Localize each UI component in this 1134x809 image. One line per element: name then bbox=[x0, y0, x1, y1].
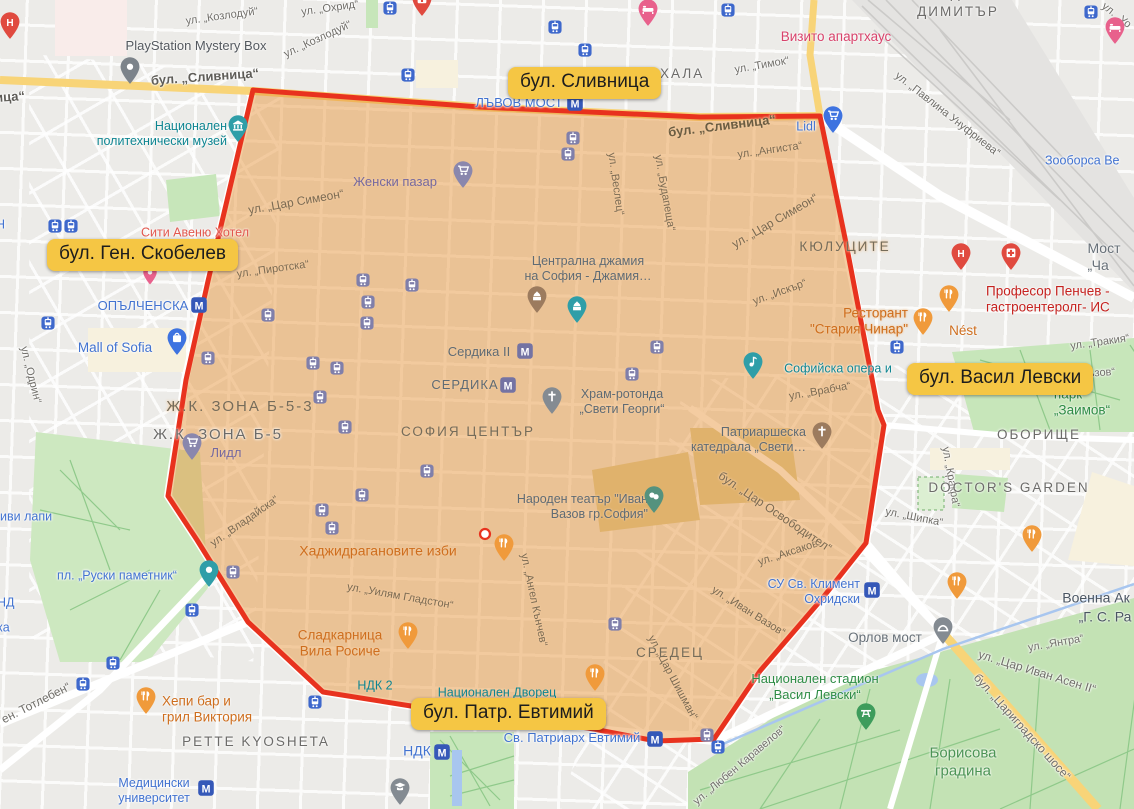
restaurant-pin[interactable] bbox=[1022, 525, 1043, 553]
bridge-pin[interactable] bbox=[933, 617, 954, 645]
tram-stop-badge[interactable] bbox=[106, 656, 121, 671]
tram-stop-badge[interactable] bbox=[578, 43, 593, 58]
metro-badge[interactable] bbox=[647, 731, 664, 748]
tram-stop-badge[interactable] bbox=[355, 488, 370, 503]
tram-stop-badge[interactable] bbox=[561, 147, 576, 162]
hospital-pin[interactable] bbox=[412, 0, 433, 17]
area-label: ХАДЖИ bbox=[928, 0, 988, 2]
poi-label[interactable]: Nést bbox=[949, 323, 977, 339]
tram-stop-badge[interactable] bbox=[548, 20, 563, 35]
poi-label[interactable]: Сладкарница Вила Росиче bbox=[298, 628, 382, 661]
picnic-pin[interactable] bbox=[856, 703, 877, 731]
poi-label[interactable]: Mall of Sofia bbox=[78, 340, 152, 356]
poi-label[interactable]: Визито апартхаус bbox=[781, 29, 892, 45]
restaurant-pin[interactable] bbox=[494, 534, 515, 562]
tram-stop-badge[interactable] bbox=[890, 340, 905, 355]
poi-label[interactable]: Народен театър "Иван Вазов гр.София" bbox=[517, 492, 648, 523]
restaurant-pin[interactable] bbox=[136, 687, 157, 715]
tram-stop-badge[interactable] bbox=[306, 356, 321, 371]
tram-stop-badge[interactable] bbox=[405, 278, 420, 293]
poi-label[interactable]: Хаджидрагановите изби bbox=[299, 542, 456, 559]
supermarket-pin[interactable] bbox=[182, 433, 203, 461]
poi-label[interactable]: Професор Пенчев - гастроентеролг- ИС bbox=[986, 284, 1110, 317]
metro-station-label[interactable]: Сердика II bbox=[448, 344, 510, 360]
poi-label[interactable]: Патриаршеска катедрала „Свети… bbox=[691, 425, 806, 456]
poi-label[interactable]: иви лапи bbox=[0, 509, 52, 524]
mosque-pin[interactable] bbox=[527, 286, 548, 314]
tram-stop-badge[interactable] bbox=[608, 617, 623, 632]
tram-stop-badge[interactable] bbox=[313, 390, 328, 405]
tram-stop-badge[interactable] bbox=[201, 351, 216, 366]
metro-station-label[interactable]: ОПЪЛЧЕНСКА bbox=[98, 298, 189, 314]
restaurant-pin[interactable] bbox=[913, 308, 934, 336]
university-pin[interactable] bbox=[390, 778, 411, 806]
tram-stop-badge[interactable] bbox=[64, 219, 79, 234]
hospital-pin[interactable] bbox=[1001, 243, 1022, 271]
tram-stop-badge[interactable] bbox=[185, 603, 200, 618]
area-label: Ж.К. ЗОНА Б-5 bbox=[153, 426, 283, 444]
poi-label[interactable]: НДК 2 bbox=[357, 678, 392, 693]
hospital-pin[interactable] bbox=[0, 12, 21, 40]
tram-stop-badge[interactable] bbox=[360, 316, 375, 331]
metro-station-label[interactable]: НДК bbox=[403, 742, 431, 759]
tram-stop-badge[interactable] bbox=[1084, 5, 1099, 20]
hotel-pin[interactable] bbox=[1105, 17, 1126, 45]
poi-label[interactable]: Хепи бар и грил Виктория bbox=[162, 694, 252, 727]
metro-station-label[interactable]: Св. Патриарх Евтимий bbox=[504, 730, 641, 746]
tram-stop-badge[interactable] bbox=[650, 340, 665, 355]
tram-stop-badge[interactable] bbox=[721, 3, 736, 18]
highlight-label-slivnitsa: бул. Сливница bbox=[508, 67, 661, 99]
tram-stop-badge[interactable] bbox=[261, 308, 276, 323]
park-label: Борисова градина bbox=[929, 745, 996, 782]
opera-pin[interactable] bbox=[743, 352, 764, 380]
poi-pin[interactable] bbox=[120, 57, 141, 85]
poi-label[interactable]: пл. „Руски паметник“ bbox=[57, 568, 177, 583]
metro-badge[interactable] bbox=[434, 744, 451, 761]
tram-stop-badge[interactable] bbox=[325, 521, 340, 536]
poi-label[interactable]: Зооборса Ве bbox=[1045, 153, 1119, 168]
tram-stop-badge[interactable] bbox=[226, 565, 241, 580]
poi-label[interactable]: Lidl bbox=[796, 119, 815, 134]
monument-pin[interactable] bbox=[199, 560, 220, 588]
area-label: Ж.К. ЗОНА Б-5-3 bbox=[166, 398, 313, 416]
area-label: ДИМИТЪР bbox=[917, 4, 999, 20]
tram-stop-badge[interactable] bbox=[76, 677, 91, 692]
tram-stop-badge[interactable] bbox=[315, 503, 330, 518]
restaurant-pin[interactable] bbox=[947, 572, 968, 600]
restaurant-pin[interactable] bbox=[939, 285, 960, 313]
tram-stop-badge[interactable] bbox=[700, 728, 715, 743]
poi-label: Мост „Ча bbox=[1087, 240, 1120, 274]
poi-label[interactable]: Софийска опера и bbox=[784, 361, 892, 376]
highlight-label-skobelev: бул. Ген. Скобелев bbox=[47, 239, 238, 271]
poi-label: ка bbox=[0, 620, 10, 635]
area-label: СОФИЯ ЦЕНТЪР bbox=[401, 424, 535, 440]
tram-stop-badge[interactable] bbox=[420, 464, 435, 479]
tram-stop-badge[interactable] bbox=[383, 1, 398, 16]
poi-label: Военна Ак bbox=[1062, 589, 1130, 606]
highlight-label-levski: бул. Васил Левски bbox=[907, 363, 1093, 395]
tram-stop-badge[interactable] bbox=[356, 273, 371, 288]
metro-badge[interactable] bbox=[198, 780, 215, 797]
poi-label[interactable]: Национален политехнически музей bbox=[97, 119, 227, 150]
hotel-pin[interactable] bbox=[638, 0, 659, 27]
restaurant-pin[interactable] bbox=[585, 664, 606, 692]
hospital-pin[interactable] bbox=[951, 243, 972, 271]
tram-stop-badge[interactable] bbox=[338, 420, 353, 435]
area-label: PETTE KYOSHETA bbox=[182, 734, 330, 750]
supermarket-pin[interactable] bbox=[823, 106, 844, 134]
tram-stop-badge[interactable] bbox=[330, 361, 345, 376]
poi-label[interactable]: Женски пазар bbox=[353, 174, 437, 190]
poi-label[interactable]: PlayStation Mystery Box bbox=[126, 38, 267, 54]
tram-stop-badge[interactable] bbox=[625, 367, 640, 382]
poi-label[interactable]: Лидл bbox=[211, 445, 242, 461]
street-label: ица“ bbox=[0, 88, 25, 106]
metro-badge[interactable] bbox=[864, 582, 881, 599]
poi-label[interactable]: Национален стадион „Васил Левски“ bbox=[751, 671, 878, 703]
metro-badge[interactable] bbox=[517, 343, 534, 360]
poi-label[interactable]: Орлов мост bbox=[848, 630, 922, 646]
poi-label[interactable]: Храм-ротонда „Свети Георги“ bbox=[580, 387, 665, 418]
area-label: СРЕДЕЦ bbox=[636, 645, 704, 661]
metro-station-label[interactable]: СЕРДИКА bbox=[431, 377, 498, 393]
church-pin[interactable] bbox=[812, 422, 833, 450]
tram-stop-badge[interactable] bbox=[566, 131, 581, 146]
map-canvas[interactable]: H М bbox=[0, 0, 1134, 809]
metro-badge[interactable] bbox=[500, 377, 517, 394]
poi-label[interactable]: Ресторант "Стария Чинар" bbox=[810, 306, 908, 339]
mall-pin[interactable] bbox=[167, 328, 188, 356]
highlight-label-evtimiy: бул. Патр. Евтимий bbox=[411, 698, 606, 730]
poi-label: НД bbox=[0, 595, 15, 610]
poi-label[interactable]: СУ Св. Климент Охридски bbox=[768, 577, 860, 608]
market-pin[interactable] bbox=[453, 161, 474, 189]
museum-pin[interactable] bbox=[228, 115, 249, 143]
poi-label[interactable]: Централна джамия на София - Джамия… bbox=[524, 254, 651, 285]
metro-station-label[interactable]: Медицински университет bbox=[118, 776, 190, 807]
tram-stop-badge[interactable] bbox=[41, 316, 56, 331]
mosque-pin[interactable] bbox=[567, 296, 588, 324]
restaurant-pin[interactable] bbox=[398, 622, 419, 650]
theater-pin[interactable] bbox=[644, 486, 665, 514]
tram-stop-badge[interactable] bbox=[48, 219, 63, 234]
area-label: DOCTOR'S GARDEN bbox=[928, 480, 1089, 496]
poi-label: „Г. С. Ра bbox=[1079, 608, 1132, 625]
poi-label: Н bbox=[0, 217, 5, 232]
tram-stop-badge[interactable] bbox=[308, 695, 323, 710]
tram-stop-badge[interactable] bbox=[401, 68, 416, 83]
metro-badge[interactable] bbox=[191, 297, 208, 314]
area-label: ОБОРИЩЕ bbox=[997, 427, 1081, 443]
zone-center-marker bbox=[477, 526, 494, 543]
tram-stop-badge[interactable] bbox=[361, 295, 376, 310]
area-label: КЮЛУЦИТЕ bbox=[799, 239, 890, 255]
church-pin[interactable] bbox=[542, 387, 563, 415]
